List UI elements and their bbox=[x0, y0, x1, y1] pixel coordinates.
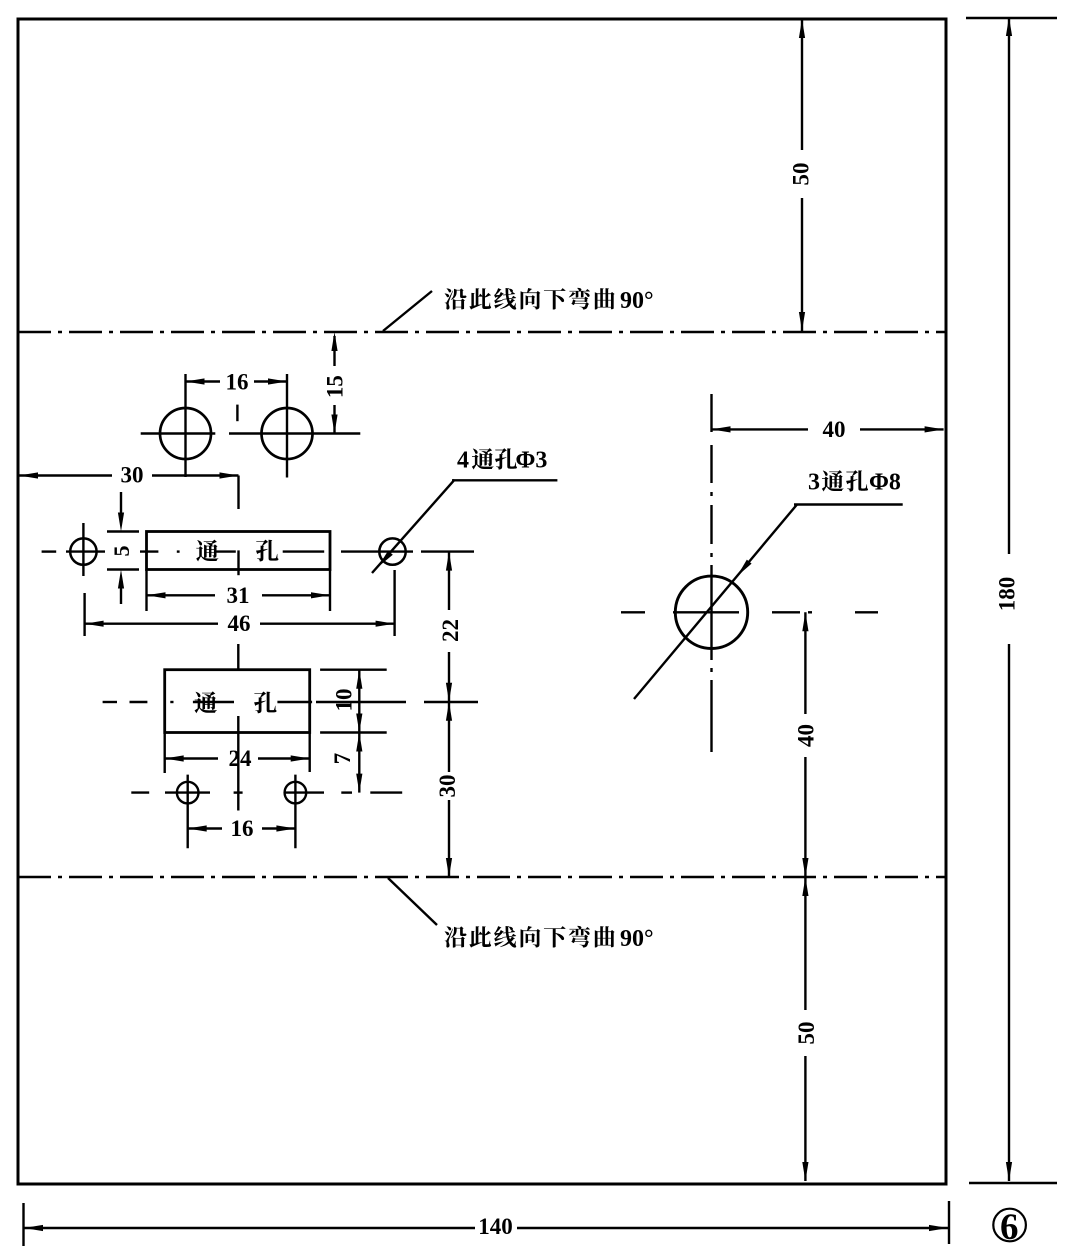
svg-text:50: 50 bbox=[794, 1022, 819, 1045]
svg-text:90°: 90° bbox=[620, 926, 654, 952]
svg-text:16: 16 bbox=[226, 369, 249, 394]
svg-text:40: 40 bbox=[823, 417, 846, 442]
svg-text:5: 5 bbox=[109, 546, 134, 557]
svg-text:140: 140 bbox=[478, 1214, 513, 1239]
svg-text:50: 50 bbox=[788, 163, 813, 186]
svg-text:31: 31 bbox=[227, 583, 250, 608]
svg-text:180: 180 bbox=[994, 577, 1019, 612]
svg-text:30: 30 bbox=[435, 775, 460, 798]
svg-text:46: 46 bbox=[228, 611, 251, 636]
svg-text:22: 22 bbox=[438, 619, 463, 642]
svg-text:Φ8: Φ8 bbox=[869, 470, 901, 496]
svg-text:90°: 90° bbox=[620, 288, 654, 314]
svg-text:Φ3: Φ3 bbox=[516, 448, 548, 474]
svg-text:24: 24 bbox=[229, 746, 253, 771]
svg-text:6: 6 bbox=[1000, 1207, 1019, 1248]
svg-text:15: 15 bbox=[322, 375, 347, 398]
svg-text:7: 7 bbox=[330, 753, 355, 765]
svg-text:30: 30 bbox=[121, 462, 144, 487]
svg-text:4: 4 bbox=[457, 448, 469, 474]
svg-text:16: 16 bbox=[231, 816, 254, 841]
svg-text:40: 40 bbox=[793, 724, 818, 747]
svg-text:10: 10 bbox=[331, 689, 356, 712]
svg-text:3: 3 bbox=[808, 470, 820, 496]
